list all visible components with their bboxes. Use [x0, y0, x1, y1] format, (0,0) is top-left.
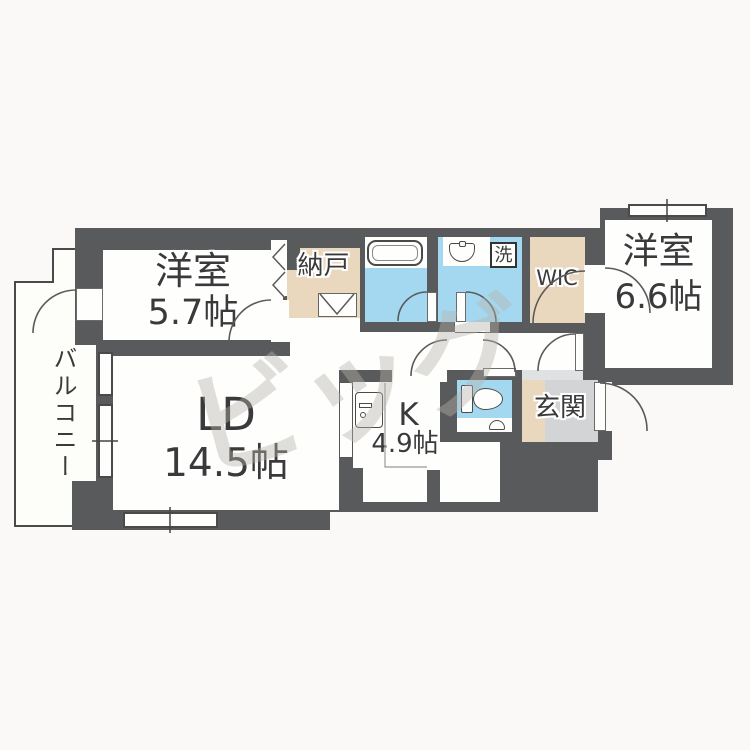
window-living-west-upper: [98, 352, 113, 396]
hall-entrance-door-leaf: [575, 333, 584, 371]
storage-folding-door: [318, 293, 357, 317]
window-living-west-lower: [98, 404, 113, 478]
bedroom-west-size: 5.7帖: [103, 296, 283, 331]
entrance-step: [522, 370, 583, 380]
washing-machine-box: 洗: [490, 242, 517, 268]
washbasin-tap: [459, 241, 466, 247]
wall-kitchen-pillar: [427, 470, 440, 502]
bathtub-icon: [367, 240, 423, 266]
storage-label: 納戸: [287, 253, 360, 279]
kitchen-floor-south: [363, 468, 427, 502]
window-living-south: [123, 512, 218, 528]
wic-label: WIC: [527, 268, 587, 289]
floor-plan-page: { "plan": { "watermark": "ビッグ", "rooms":…: [0, 0, 750, 750]
bedroom-east-door-opening: [584, 265, 605, 313]
bedroom-east-name: 洋室: [605, 234, 712, 270]
entrance-door-notch: [606, 382, 612, 431]
bedroom-west-name: 洋室: [103, 252, 283, 290]
balcony-door-leaf: [76, 288, 103, 321]
bedroom-east-size: 6.6帖: [605, 280, 712, 314]
window-bedroom-east: [628, 204, 707, 217]
front-door-leaf: [594, 382, 606, 431]
balcony-label: バルコニー: [46, 328, 80, 498]
laundry-label: 洗: [495, 245, 513, 266]
bathtub-inner-line: [372, 245, 418, 261]
